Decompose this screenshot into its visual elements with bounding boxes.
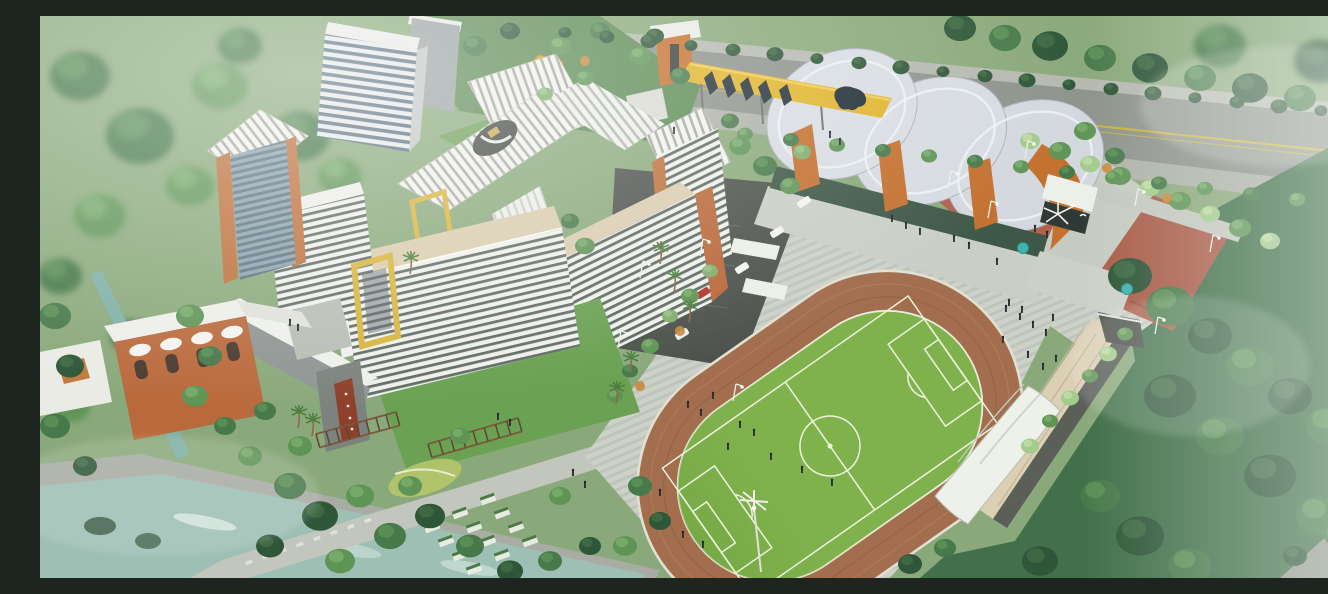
- campus-aerial-rendering: Bird's-eye rendering of a school campus:…: [40, 16, 1328, 578]
- rendering-canvas: [40, 16, 1328, 578]
